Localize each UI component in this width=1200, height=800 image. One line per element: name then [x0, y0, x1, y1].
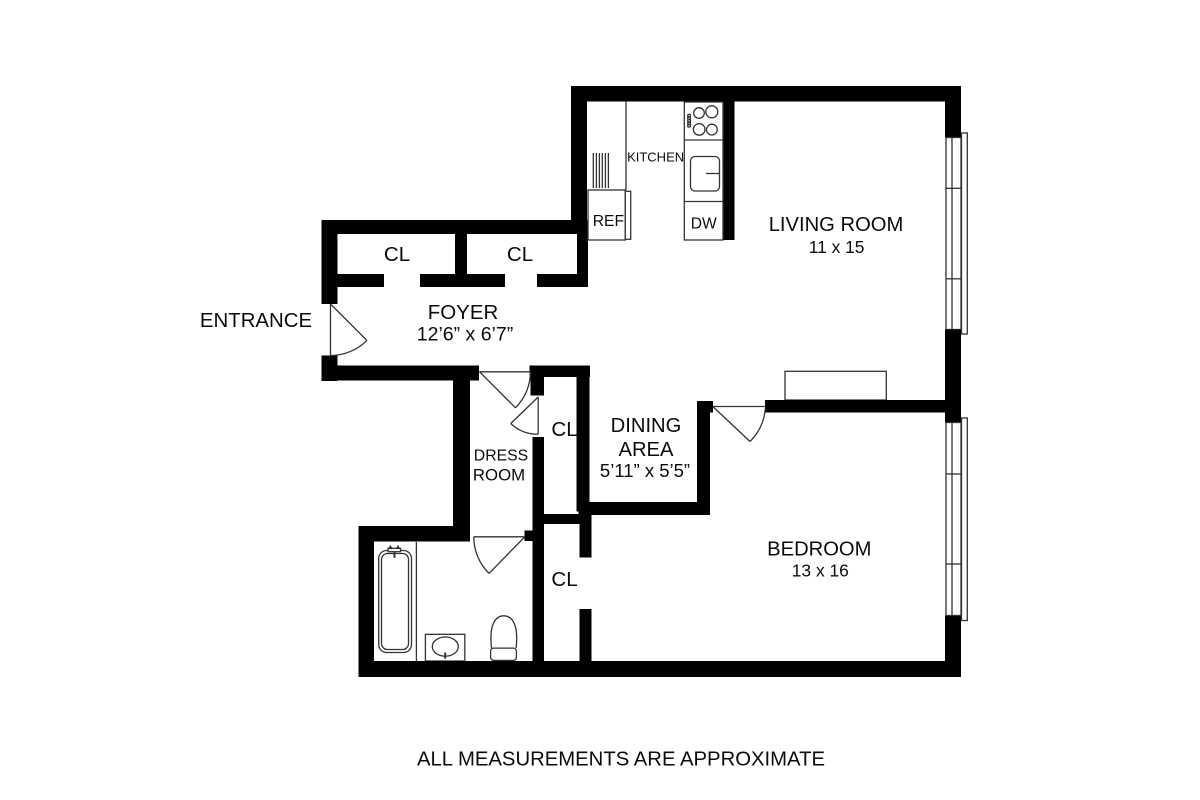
svg-text:5’11” x 5’5”: 5’11” x 5’5”: [600, 460, 690, 481]
svg-text:LIVING ROOM: LIVING ROOM: [769, 214, 904, 236]
svg-text:CL: CL: [507, 243, 533, 266]
svg-text:CL: CL: [384, 243, 410, 266]
svg-text:ROOM: ROOM: [473, 466, 525, 485]
svg-text:12’6” x 6’7”: 12’6” x 6’7”: [417, 324, 513, 346]
svg-text:REF: REF: [593, 213, 624, 230]
svg-text:ENTRANCE: ENTRANCE: [200, 310, 312, 332]
svg-text:DW: DW: [691, 216, 717, 233]
svg-text:DRESS: DRESS: [474, 448, 528, 465]
svg-text:11 x 15: 11 x 15: [809, 237, 865, 257]
svg-text:BEDROOM: BEDROOM: [767, 539, 871, 561]
svg-text:ALL MEASUREMENTS ARE APPROXIMA: ALL MEASUREMENTS ARE APPROXIMATE: [417, 749, 825, 771]
svg-text:KITCHEN: KITCHEN: [627, 150, 684, 165]
svg-text:CL: CL: [551, 568, 577, 591]
svg-text:FOYER: FOYER: [428, 301, 499, 324]
svg-text:CL: CL: [551, 418, 577, 441]
svg-text:AREA: AREA: [619, 439, 675, 461]
svg-text:13 x 16: 13 x 16: [792, 561, 849, 581]
svg-text:DINING: DINING: [611, 415, 682, 437]
